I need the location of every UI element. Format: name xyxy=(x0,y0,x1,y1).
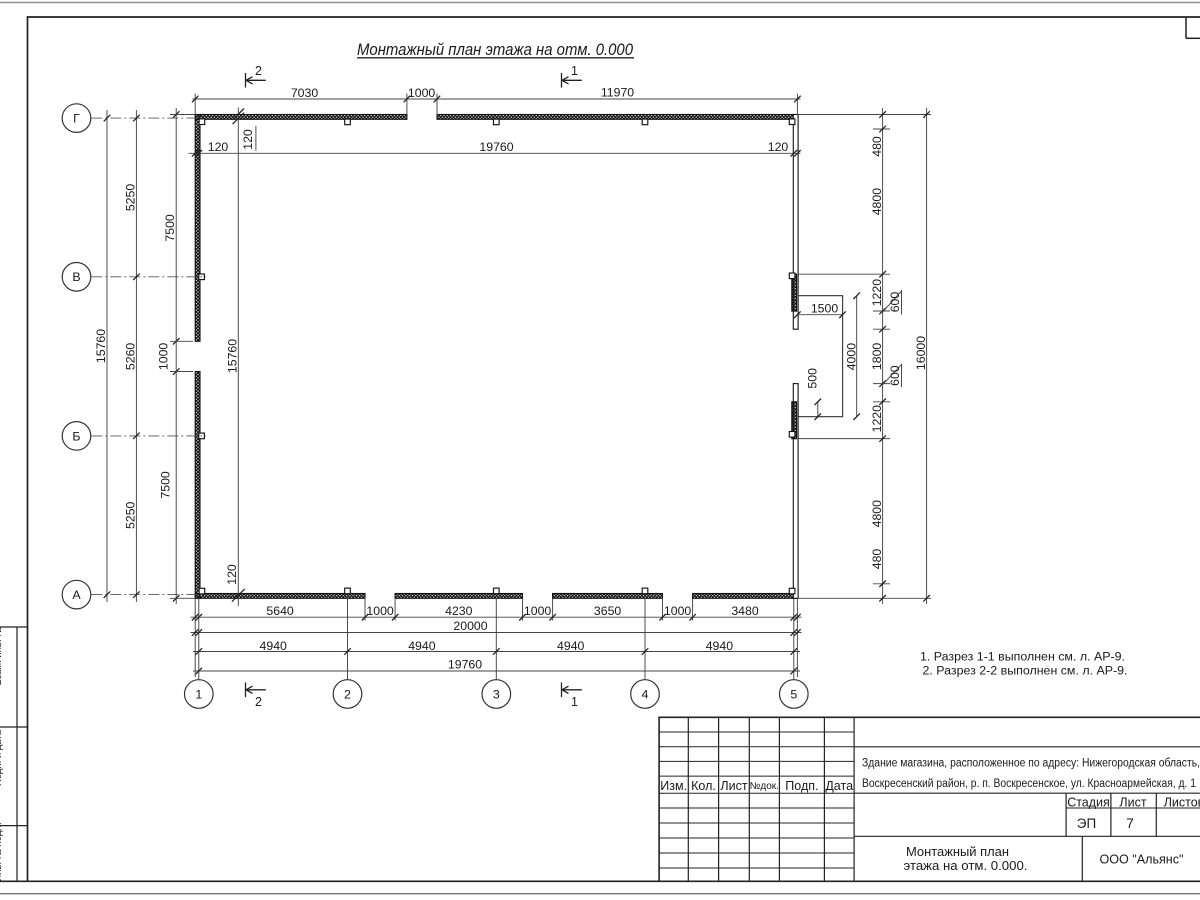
svg-text:1220: 1220 xyxy=(870,405,884,433)
svg-text:120: 120 xyxy=(208,140,229,154)
svg-text:Листов: Листов xyxy=(1164,795,1200,809)
svg-text:7030: 7030 xyxy=(291,86,319,100)
svg-text:2: 2 xyxy=(255,695,262,709)
svg-text:этажа на отм. 0.000.: этажа на отм. 0.000. xyxy=(904,859,1028,873)
svg-text:1500: 1500 xyxy=(811,302,839,316)
svg-text:480: 480 xyxy=(870,549,884,570)
svg-text:7500: 7500 xyxy=(159,471,173,499)
svg-text:№док.: №док. xyxy=(750,781,779,792)
svg-text:600: 600 xyxy=(888,365,902,386)
svg-text:20000: 20000 xyxy=(453,619,487,633)
svg-text:1000: 1000 xyxy=(157,343,171,371)
svg-text:3480: 3480 xyxy=(731,604,759,618)
svg-text:11970: 11970 xyxy=(601,86,634,100)
svg-text:1: 1 xyxy=(571,64,578,78)
svg-text:15760: 15760 xyxy=(94,329,108,363)
svg-text:Б: Б xyxy=(72,429,80,443)
svg-text:4230: 4230 xyxy=(445,604,473,618)
svg-text:А: А xyxy=(72,588,81,602)
svg-text:4000: 4000 xyxy=(844,343,858,371)
svg-text:Лист: Лист xyxy=(720,779,747,793)
svg-text:Кол.: Кол. xyxy=(691,779,716,793)
svg-text:ЭП: ЭП xyxy=(1077,816,1096,831)
svg-text:1000: 1000 xyxy=(366,604,394,618)
svg-text:1000: 1000 xyxy=(524,604,552,618)
svg-text:4940: 4940 xyxy=(706,639,734,653)
svg-text:3: 3 xyxy=(493,687,500,701)
svg-text:ООО "Альянс": ООО "Альянс" xyxy=(1100,853,1184,867)
svg-text:Инв. № подл.: Инв. № подл. xyxy=(0,822,4,881)
svg-text:500: 500 xyxy=(805,368,819,389)
svg-text:120: 120 xyxy=(241,129,255,150)
svg-text:4800: 4800 xyxy=(870,500,884,528)
svg-text:Воскресенский район, р. п. Вос: Воскресенский район, р. п. Воскресенское… xyxy=(862,778,1196,790)
svg-text:7: 7 xyxy=(1126,816,1134,831)
svg-text:19760: 19760 xyxy=(448,658,482,672)
svg-text:Подп. и дата: Подп. и дата xyxy=(0,729,4,786)
svg-text:Лист: Лист xyxy=(1119,795,1146,809)
svg-text:1800: 1800 xyxy=(870,343,884,371)
svg-text:4800: 4800 xyxy=(870,188,884,216)
svg-text:Монтажный план этажа на отм. 0: Монтажный план этажа на отм. 0.000 xyxy=(357,40,633,59)
svg-text:19760: 19760 xyxy=(479,140,513,154)
svg-text:Изм.: Изм. xyxy=(660,779,687,793)
svg-text:5640: 5640 xyxy=(266,604,294,618)
svg-text:120: 120 xyxy=(768,140,789,154)
svg-text:1: 1 xyxy=(571,695,578,709)
svg-text:Подп.: Подп. xyxy=(785,779,818,793)
svg-text:В: В xyxy=(72,270,80,284)
svg-text:1000: 1000 xyxy=(664,604,692,618)
svg-text:5260: 5260 xyxy=(123,343,137,371)
svg-text:5250: 5250 xyxy=(123,501,137,529)
svg-text:2: 2 xyxy=(344,687,351,701)
svg-text:4940: 4940 xyxy=(260,639,288,653)
svg-text:1000: 1000 xyxy=(408,86,436,100)
svg-text:600: 600 xyxy=(888,292,902,313)
svg-text:Дата: Дата xyxy=(825,779,853,793)
svg-text:1: 1 xyxy=(195,687,202,701)
svg-text:3650: 3650 xyxy=(594,604,622,618)
svg-text:480: 480 xyxy=(870,136,884,157)
svg-text:16000: 16000 xyxy=(914,336,928,370)
svg-text:Взам. инв. №: Взам. инв. № xyxy=(0,627,4,686)
svg-text:15760: 15760 xyxy=(225,339,239,373)
svg-text:120: 120 xyxy=(225,564,239,585)
svg-text:1. Разрез 1-1 выполнен см. л.: 1. Разрез 1-1 выполнен см. л. АР-9. xyxy=(920,652,1125,664)
svg-text:4: 4 xyxy=(642,687,649,701)
svg-text:Здание магазина, расположенное: Здание магазина, расположенное по адресу… xyxy=(862,758,1200,770)
svg-text:2. Разрез 2-2 выполнен см. л.: 2. Разрез 2-2 выполнен см. л. АР-9. xyxy=(923,666,1128,678)
svg-text:Стадия: Стадия xyxy=(1067,795,1110,809)
svg-text:5250: 5250 xyxy=(123,184,137,212)
svg-text:Монтажный план: Монтажный план xyxy=(906,845,1009,859)
svg-text:Г: Г xyxy=(73,112,80,126)
svg-text:2: 2 xyxy=(255,64,262,78)
svg-text:4940: 4940 xyxy=(408,639,436,653)
svg-text:1220: 1220 xyxy=(870,279,884,307)
svg-text:5: 5 xyxy=(790,687,797,701)
svg-text:7500: 7500 xyxy=(163,214,177,242)
svg-text:4940: 4940 xyxy=(557,639,585,653)
